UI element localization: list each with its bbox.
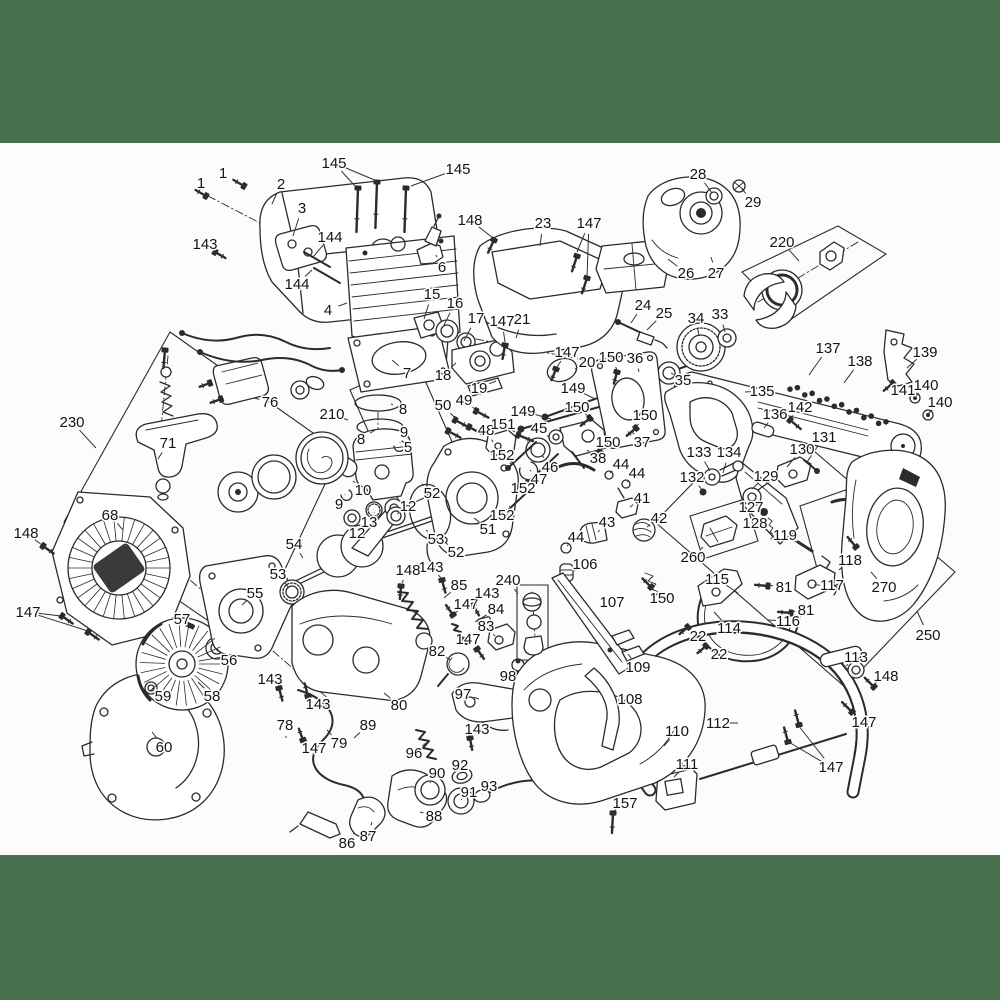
part-label-21: 21	[514, 311, 531, 328]
part-label-91: 91	[461, 784, 478, 801]
part-label-58: 58	[204, 688, 221, 705]
part-label-80: 80	[391, 697, 408, 714]
part-label-86: 86	[339, 835, 356, 852]
chain-link	[824, 396, 830, 402]
part-label-157: 157	[612, 795, 637, 812]
leader-line	[790, 611, 795, 612]
part-label-12: 12	[349, 525, 366, 542]
part-label-210: 210	[319, 406, 344, 423]
part-label-10: 10	[355, 482, 372, 499]
part-label-16: 16	[447, 295, 464, 312]
part-label-115: 115	[705, 571, 729, 588]
part-label-138: 138	[847, 353, 872, 370]
part-label-15: 15	[424, 286, 441, 303]
part-label-118: 118	[838, 552, 862, 569]
chain-link	[802, 392, 808, 398]
part-label-147: 147	[301, 740, 326, 757]
part-label-143: 143	[192, 236, 217, 253]
part-label-131: 131	[811, 429, 836, 446]
part-label-107: 107	[599, 594, 624, 611]
part-label-98: 98	[500, 668, 517, 685]
part-label-270: 270	[871, 579, 896, 596]
part-label-84: 84	[488, 601, 505, 618]
part-label-17: 17	[468, 310, 485, 327]
part-label-81: 81	[776, 579, 793, 596]
part-label-53: 53	[428, 531, 445, 548]
part-label-147: 147	[851, 714, 876, 731]
part-label-78: 78	[277, 717, 294, 734]
part-label-149: 149	[560, 380, 585, 397]
part-label-38: 38	[590, 450, 607, 467]
part-label-143: 143	[418, 559, 443, 576]
part-label-51: 51	[480, 521, 497, 538]
part-label-119: 119	[773, 527, 797, 544]
part-label-7: 7	[403, 365, 411, 382]
part-label-22: 22	[711, 646, 728, 663]
part-label-1: 1	[197, 175, 205, 192]
part-label-53: 53	[270, 566, 287, 583]
part-label-88: 88	[426, 808, 443, 825]
leader-line	[767, 585, 773, 586]
chain-link	[795, 385, 801, 391]
part-label-143: 143	[257, 671, 282, 688]
part-label-35: 35	[675, 372, 692, 389]
part-label-147: 147	[455, 631, 480, 648]
part-label-117: 117	[820, 577, 844, 594]
part-label-144: 144	[317, 229, 342, 246]
part-label-52: 52	[424, 485, 441, 502]
part-label-108: 108	[617, 691, 642, 708]
part-label-133: 133	[686, 444, 711, 461]
part-label-44: 44	[613, 456, 630, 473]
part-label-116: 116	[776, 613, 800, 630]
part-label-150: 150	[598, 349, 623, 366]
part-label-143: 143	[464, 721, 489, 738]
part-label-3: 3	[298, 200, 306, 217]
chain-link	[868, 413, 874, 419]
part-label-42: 42	[651, 510, 668, 527]
part-label-148: 148	[13, 525, 38, 542]
part-label-136: 136	[762, 406, 787, 423]
part-label-111: 111	[676, 756, 699, 773]
bottom-green-band	[0, 855, 1000, 1000]
part-label-148: 148	[457, 212, 482, 229]
part-label-240: 240	[495, 572, 520, 589]
part-label-71: 71	[160, 435, 177, 452]
part-label-142: 142	[787, 399, 812, 416]
leader-line	[353, 833, 354, 834]
part-label-152: 152	[489, 447, 514, 464]
screenshot-canvas: 1123143144144414514514861516177182314728…	[0, 0, 1000, 1000]
part-label-150: 150	[649, 590, 674, 607]
chain-link	[832, 403, 838, 409]
part-label-145: 145	[445, 161, 470, 178]
part-label-127: 127	[738, 499, 763, 516]
part-label-55: 55	[247, 585, 264, 602]
part-label-82: 82	[429, 643, 446, 660]
part-label-68: 68	[102, 507, 119, 524]
part-label-8: 8	[357, 431, 365, 448]
part-label-45: 45	[531, 420, 548, 437]
part-label-147: 147	[818, 759, 843, 776]
part-label-4: 4	[324, 302, 332, 319]
part-label-145: 145	[321, 155, 346, 172]
part-label-9: 9	[335, 496, 343, 513]
part-label-151: 151	[490, 416, 515, 433]
part-label-23: 23	[535, 215, 552, 232]
part-label-1: 1	[219, 165, 227, 182]
leader-line	[430, 782, 431, 783]
part-label-81: 81	[798, 602, 815, 619]
chain-link	[809, 391, 815, 397]
leader-line	[391, 404, 393, 405]
part-label-49: 49	[456, 392, 473, 409]
part-label-37: 37	[634, 434, 651, 451]
part-label-143: 143	[305, 696, 330, 713]
part-label-260: 260	[680, 549, 705, 566]
part-label-54: 54	[286, 536, 303, 553]
part-label-112: 112	[706, 715, 730, 732]
chain-link	[861, 415, 867, 421]
part-label-147: 147	[576, 215, 601, 232]
part-label-25: 25	[656, 305, 673, 322]
part-label-134: 134	[716, 444, 741, 461]
part-label-18: 18	[435, 367, 452, 384]
exploded-parts-diagram: 1123143144144414514514861516177182314728…	[0, 0, 1000, 1000]
part-label-52: 52	[448, 544, 465, 561]
part-label-5: 5	[404, 439, 412, 456]
top-cover	[643, 177, 740, 279]
part-label-20: 20	[579, 354, 596, 371]
part-label-43: 43	[599, 514, 616, 531]
part-label-89: 89	[360, 717, 377, 734]
part-label-130: 130	[789, 441, 814, 458]
part-label-106: 106	[572, 556, 597, 573]
part-label-8: 8	[399, 401, 407, 418]
part-label-147: 147	[554, 344, 579, 361]
part-label-22: 22	[690, 628, 707, 645]
part-label-140: 140	[913, 377, 938, 394]
part-label-250: 250	[915, 627, 940, 644]
part-label-109: 109	[625, 659, 650, 676]
part-label-147: 147	[15, 604, 40, 621]
chain-link	[854, 408, 860, 414]
part-label-147: 147	[489, 313, 514, 330]
part-label-220: 220	[769, 234, 794, 251]
part-label-19: 19	[471, 380, 488, 397]
part-label-93: 93	[481, 778, 498, 795]
part-label-113: 113	[844, 649, 868, 666]
part-label-76: 76	[262, 394, 279, 411]
part-label-135: 135	[749, 383, 774, 400]
part-label-85: 85	[451, 577, 468, 594]
part-label-6: 6	[438, 259, 446, 276]
part-label-44: 44	[568, 529, 585, 546]
chain-link	[817, 398, 823, 404]
part-label-132: 132	[679, 469, 704, 486]
part-label-230: 230	[59, 414, 84, 431]
part-label-33: 33	[712, 306, 729, 323]
part-label-59: 59	[155, 688, 172, 705]
chain-link	[846, 409, 852, 415]
part-label-87: 87	[360, 828, 377, 845]
part-label-148: 148	[873, 668, 898, 685]
part-label-150: 150	[632, 407, 657, 424]
chain-link	[839, 402, 845, 408]
part-label-2: 2	[277, 176, 285, 193]
part-label-150: 150	[595, 434, 620, 451]
part-label-34: 34	[688, 310, 705, 327]
part-label-56: 56	[221, 652, 238, 669]
part-label-128: 128	[742, 515, 767, 532]
part-label-129: 129	[753, 468, 778, 485]
chain-link	[876, 421, 882, 427]
part-label-141: 141	[890, 382, 915, 399]
part-label-140: 140	[927, 394, 952, 411]
part-label-28: 28	[690, 166, 707, 183]
part-label-114: 114	[717, 620, 741, 637]
part-label-79: 79	[331, 735, 348, 752]
part-label-92: 92	[452, 757, 469, 774]
part-label-27: 27	[708, 265, 725, 282]
part-label-50: 50	[435, 397, 452, 414]
part-label-150: 150	[564, 399, 589, 416]
part-label-139: 139	[912, 344, 937, 361]
part-label-110: 110	[665, 723, 689, 740]
part-label-96: 96	[406, 745, 423, 762]
part-label-41: 41	[634, 490, 651, 507]
part-label-90: 90	[429, 765, 446, 782]
chain-link	[883, 419, 889, 425]
part-label-144: 144	[284, 276, 309, 293]
part-label-137: 137	[815, 340, 840, 357]
part-label-97: 97	[455, 686, 472, 703]
part-label-44: 44	[629, 465, 646, 482]
part-label-26: 26	[678, 265, 695, 282]
part-label-148: 148	[395, 562, 420, 579]
chain-link	[787, 386, 793, 392]
part-label-60: 60	[156, 739, 173, 756]
part-label-24: 24	[635, 297, 652, 314]
part-label-152: 152	[510, 480, 535, 497]
part-label-57: 57	[174, 611, 191, 628]
part-label-29: 29	[745, 194, 762, 211]
part-label-12: 12	[400, 498, 417, 515]
top-green-band	[0, 0, 1000, 143]
part-label-36: 36	[627, 350, 644, 367]
leader-line	[401, 455, 402, 456]
